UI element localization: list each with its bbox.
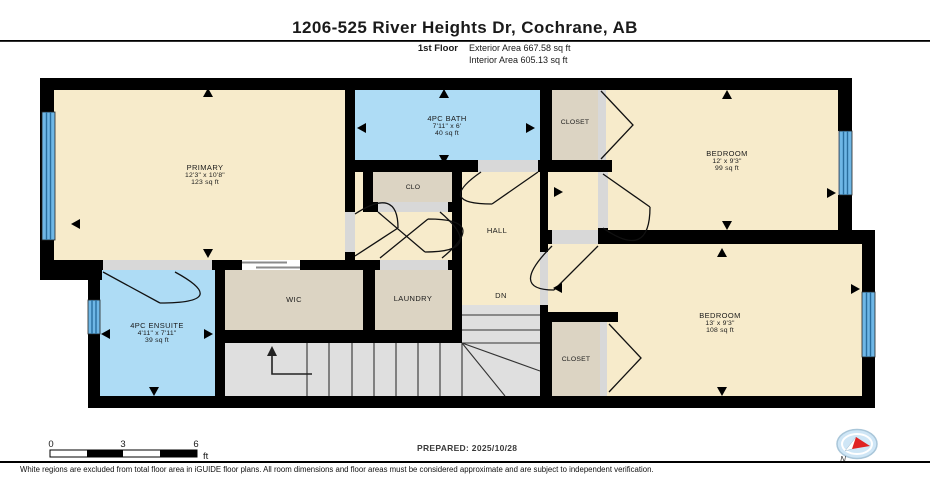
floorplan-canvas: 1206-525 River Heights Dr, Cochrane, AB …: [0, 0, 930, 500]
exterior-area: Exterior Area 667.58 sq ft: [469, 43, 571, 53]
window-ensuite: [88, 300, 100, 334]
label-bedroom-bottom-dims: 13' x 9'3": [705, 320, 735, 327]
label-closet-bottom: CLOSET: [562, 356, 590, 363]
label-bedroom-top-area: 99 sq ft: [715, 165, 739, 172]
label-hall: HALL: [487, 226, 507, 235]
window-bedroom-top: [839, 131, 852, 195]
page-title: 1206-525 River Heights Dr, Cochrane, AB: [292, 18, 638, 37]
label-bedroom-bottom: BEDROOM: [699, 311, 741, 320]
vestibule: [548, 172, 598, 230]
footer-divider: [0, 461, 930, 463]
window-bedroom-bottom: [862, 292, 875, 357]
scale-3: 3: [120, 439, 125, 450]
compass-icon: N: [837, 430, 877, 465]
label-primary-dims: 12'3" x 10'8": [185, 172, 225, 179]
label-dn: DN: [495, 291, 507, 300]
label-bath: 4PC BATH: [427, 114, 466, 123]
floor-label: 1st Floor: [418, 43, 458, 54]
window-primary: [42, 112, 55, 240]
label-ensuite-area: 39 sq ft: [145, 337, 169, 344]
label-primary-area: 123 sq ft: [191, 179, 219, 186]
interior-area: Interior Area 605.13 sq ft: [469, 55, 568, 65]
label-clo: CLO: [406, 184, 421, 191]
stairs-run: [225, 343, 462, 396]
label-bath-area: 40 sq ft: [435, 130, 459, 137]
label-bedroom-bottom-area: 108 sq ft: [706, 327, 734, 334]
floorplan-page: 1206-525 River Heights Dr, Cochrane, AB …: [0, 0, 930, 500]
scale-0: 0: [48, 439, 53, 450]
label-closet-top: CLOSET: [561, 119, 589, 126]
label-wic: WIC: [286, 295, 302, 304]
stairs-landing: [462, 305, 540, 396]
disclaimer: White regions are excluded from total fl…: [20, 465, 654, 474]
scale-unit: ft: [203, 451, 209, 462]
header-divider: [0, 40, 930, 42]
label-bath-dims: 7'11" x 6': [433, 123, 462, 130]
scale-bar: 0 3 6 ft: [48, 439, 208, 462]
label-bedroom-top: BEDROOM: [706, 149, 748, 158]
prepared-date: PREPARED: 2025/10/28: [417, 443, 517, 453]
label-laundry: LAUNDRY: [394, 294, 433, 303]
label-bedroom-top-dims: 12' x 9'3": [712, 158, 742, 165]
label-ensuite-dims: 4'11" x 7'11": [138, 330, 177, 337]
label-primary: PRIMARY: [187, 163, 224, 172]
label-ensuite: 4PC ENSUITE: [130, 321, 184, 330]
bedroom-bottom-nook: [548, 244, 606, 312]
scale-6: 6: [193, 439, 198, 450]
